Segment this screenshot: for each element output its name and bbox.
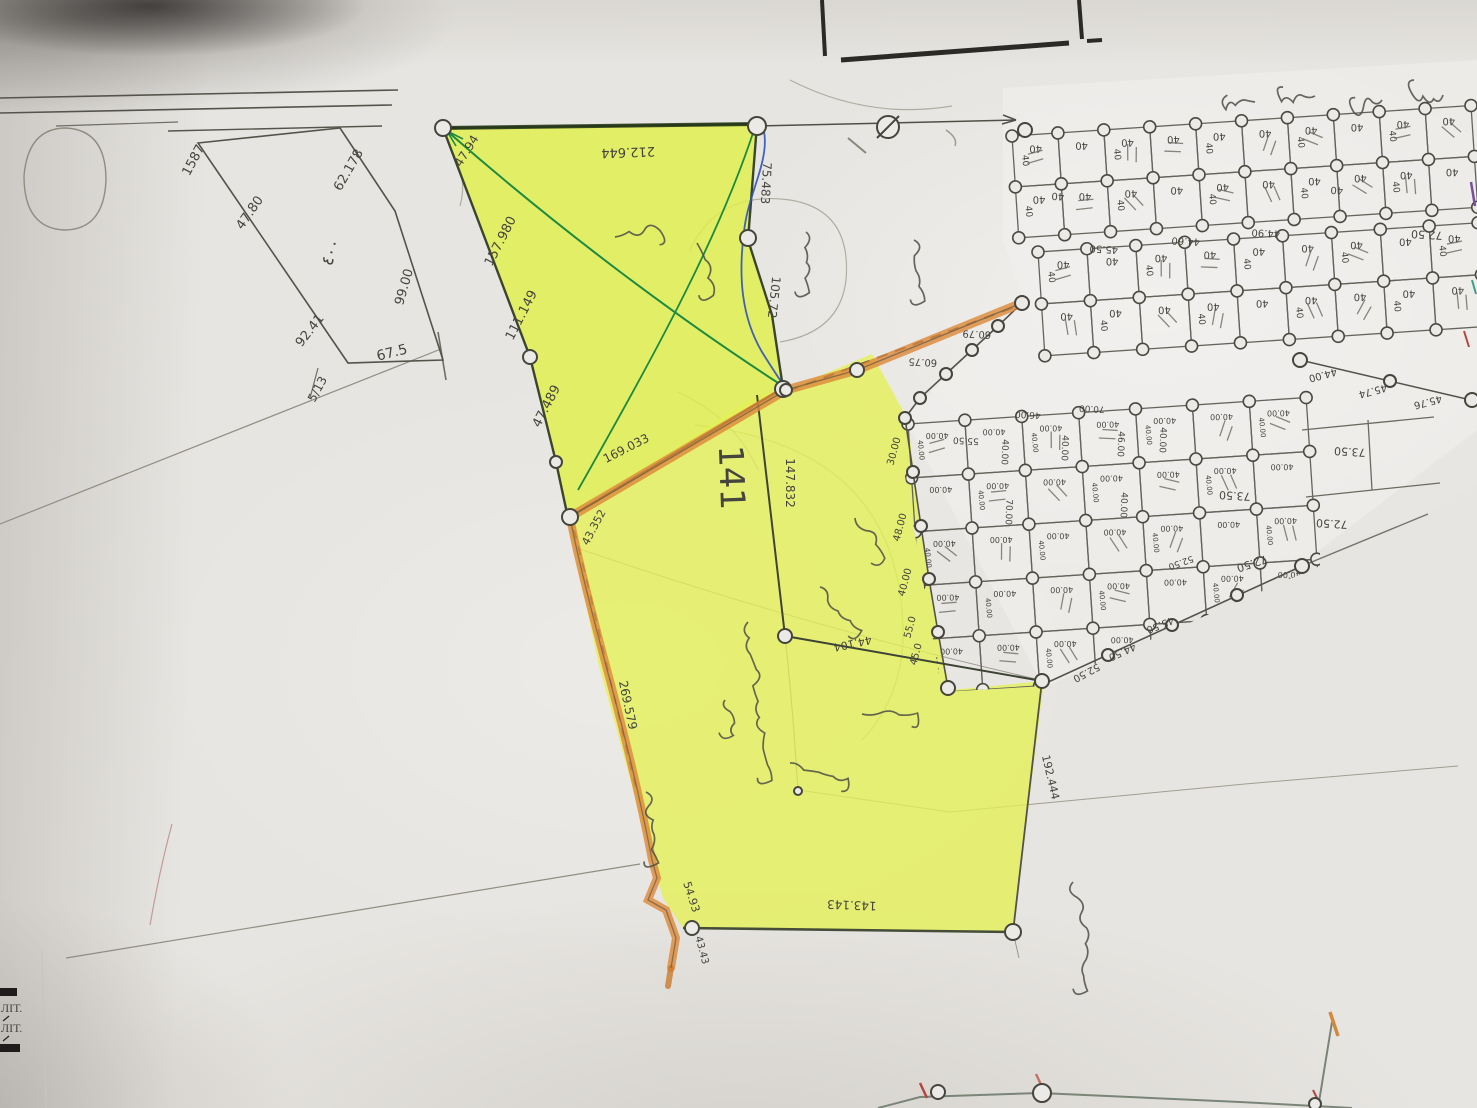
survey-node	[931, 1085, 945, 1099]
dim-label: 40	[1259, 127, 1272, 138]
arabic-scribble	[1060, 881, 1096, 995]
grid-corner-node	[1314, 607, 1327, 620]
survey-node	[562, 509, 578, 525]
dim-label-vertical: 40	[1111, 148, 1122, 161]
survey-node	[1018, 123, 1032, 137]
dim-label: 40	[1301, 242, 1314, 253]
grid-corner-node	[1380, 207, 1393, 220]
survey-node	[523, 350, 537, 364]
grid-corner-node	[1231, 285, 1244, 298]
dim-label: 40	[1262, 178, 1275, 189]
dim-label-vertical: 40	[1114, 199, 1125, 212]
survey-node	[794, 787, 802, 795]
dim-label-vertical: 40	[1019, 154, 1030, 167]
measurement-label: 44.60	[1171, 234, 1200, 246]
dim-label: 40	[1354, 172, 1367, 183]
dim-label-vertical: 40	[1195, 313, 1206, 326]
dim-label-vertical: 40	[1143, 264, 1154, 277]
measurement-label: 62.178	[331, 147, 367, 194]
grid-corner-node	[1376, 156, 1389, 169]
grid-corner-node	[1097, 124, 1110, 137]
frame-vertical-left	[822, 0, 825, 56]
survey-node	[932, 626, 944, 638]
survey-node	[1295, 559, 1309, 573]
dim-label: 40.00	[1043, 477, 1066, 486]
grid-corner-node	[1129, 239, 1142, 252]
grid-corner-node	[1133, 456, 1146, 469]
grid-corner-node	[1325, 226, 1338, 239]
measurement-label: 44.90	[1251, 226, 1280, 238]
survey-node	[966, 344, 978, 356]
survey-node	[1035, 674, 1049, 688]
grid-corner-node	[973, 629, 986, 642]
measurement-label: 70.00	[1003, 499, 1014, 525]
frame-horizontal	[841, 43, 1069, 60]
dim-label: 40	[1399, 236, 1412, 247]
measurement-label: ٤٠٠	[317, 236, 345, 269]
grid-corner-node	[1238, 165, 1251, 178]
grid-corner-node	[1426, 272, 1439, 285]
dim-label: 40	[1402, 287, 1415, 298]
dim-label: 40	[1109, 307, 1122, 318]
grid-corner-node	[1283, 333, 1296, 346]
grid-corner-node	[1084, 294, 1097, 307]
dim-label: 40	[1033, 193, 1046, 204]
grid-corner-node	[1030, 626, 1043, 639]
frame-vertical-right	[1079, 0, 1082, 39]
measurement-label: 73.50	[1334, 444, 1366, 459]
grid-corner-node	[1058, 228, 1071, 241]
survey-node	[923, 573, 935, 585]
plot-number-scribble	[1169, 635, 1192, 658]
bottom-sketch-red-tick-1	[920, 1083, 927, 1098]
grid-corner-node	[1055, 177, 1068, 190]
grid-corner-node	[1243, 395, 1256, 408]
grid-corner-node	[1143, 120, 1156, 133]
legend-arrow	[3, 1036, 9, 1041]
survey-node	[550, 456, 562, 468]
dim-label: 40.00	[1271, 462, 1294, 471]
dim-label: 40	[1446, 166, 1459, 177]
grid-corner-node	[1182, 288, 1195, 301]
dim-label: 40.00	[1103, 527, 1126, 536]
survey-node	[941, 681, 955, 695]
grid-corner-node	[1104, 225, 1117, 238]
grid-corner-node	[1425, 204, 1438, 217]
dim-label: 40.00	[1050, 585, 1073, 594]
measurement-label: 60.75	[908, 355, 937, 367]
survey-node	[915, 520, 927, 532]
measurement-label: 143.143	[827, 897, 877, 913]
measurement-label: 46.00	[1115, 431, 1126, 457]
grid-corner-node	[1246, 449, 1259, 462]
grid-corner-node	[1327, 108, 1340, 121]
measurement-label: 72.50	[1316, 516, 1348, 531]
grid-corner-node	[1374, 223, 1387, 236]
grid-corner-node	[1136, 510, 1149, 523]
grid-corner-node	[1250, 503, 1263, 516]
grid-corner-node	[1185, 340, 1198, 353]
grid-corner-node	[1377, 275, 1390, 288]
dim-label: 40.00	[933, 539, 956, 548]
dim-label-vertical: 40	[1386, 130, 1397, 143]
dim-label: 40.00	[1100, 473, 1123, 482]
dim-label: 40.00	[1047, 531, 1070, 540]
grid-corner-node	[1334, 210, 1347, 223]
survey-node	[940, 368, 952, 380]
dim-label: 40.00	[1107, 581, 1130, 590]
measurement-label: 55.50	[952, 434, 979, 445]
grid-corner-node	[1079, 514, 1092, 527]
dim-label: 40.00	[1039, 423, 1062, 432]
measurement-label: 46.00	[1014, 408, 1041, 419]
grid-corner-node	[1235, 114, 1248, 127]
dim-label: 40	[1060, 310, 1073, 321]
grid-cell	[1264, 613, 1324, 671]
measurement-label: 141	[710, 444, 752, 510]
dim-label: 40.00	[1096, 420, 1119, 429]
grid-corner-node	[1281, 111, 1294, 124]
grid-corner-node	[1087, 346, 1100, 359]
tick-2	[946, 130, 956, 146]
dim-label: 40	[1170, 184, 1183, 195]
top-road-line-3	[56, 122, 178, 126]
road-faint	[0, 349, 441, 524]
dim-label: 40.00	[936, 593, 959, 602]
legend-bar	[0, 988, 17, 996]
grid-corner-node	[1101, 174, 1114, 187]
survey-node	[850, 363, 864, 377]
legend-fragment: ЛІТ.ЛІТ.	[0, 988, 22, 1052]
grid-corner-node	[1133, 291, 1146, 304]
survey-node	[899, 412, 911, 424]
dim-label: 40.00	[990, 535, 1013, 544]
measurement-label: 45.50	[1089, 242, 1118, 254]
dim-label-vertical: 40	[1206, 193, 1217, 206]
dim-label: 40.00	[1160, 524, 1183, 533]
grid-corner-node	[1190, 453, 1203, 466]
dim-label: 40.00	[1210, 412, 1233, 421]
survey-node	[1033, 1084, 1051, 1102]
grid-corner-node	[1012, 231, 1025, 244]
survey-node	[992, 320, 1004, 332]
dim-label: 40.00	[1153, 416, 1176, 425]
map-photo: 4040404040404040404040404040404040404040…	[0, 0, 1477, 1108]
measurement-label: 192.444	[1039, 754, 1062, 801]
measurement-label: 212.644	[601, 143, 655, 160]
dim-label: 40	[1256, 297, 1269, 308]
sketch-street-line	[168, 126, 382, 131]
dim-label-vertical: 40	[1298, 187, 1309, 200]
grid-corner-node	[1227, 233, 1240, 246]
grid-corner-node	[1373, 105, 1386, 118]
grid-paper-lightening	[905, 60, 1477, 688]
dim-label-vertical: 40.00	[1158, 640, 1168, 661]
measurement-label: 73.50	[1219, 488, 1251, 503]
grid-corner-node	[1032, 246, 1045, 259]
dim-label: 40.00	[1221, 574, 1244, 583]
dim-label: 40.00	[940, 646, 963, 655]
grid-corner-node	[969, 575, 982, 588]
dim-label: 40	[1351, 121, 1364, 132]
legend-text: ЛІТ.	[1, 1021, 22, 1035]
dim-label-vertical: 40	[1097, 320, 1108, 333]
grid-corner-node	[1307, 499, 1320, 512]
grid-corner-node	[1129, 403, 1142, 416]
dim-label-vertical: 40	[1045, 271, 1056, 284]
grid-corner-node	[1035, 298, 1048, 311]
measurement-label: 1587	[180, 142, 209, 178]
dim-label-vertical: 40	[1295, 136, 1306, 149]
grid-corner-node	[1090, 676, 1103, 689]
measurement-label: 40.00	[999, 439, 1010, 465]
dim-label: 40	[1106, 255, 1119, 266]
grid-corner-node	[1083, 568, 1096, 581]
measurement-label: 60.79	[962, 327, 991, 339]
grid-corner-node	[1300, 391, 1313, 404]
dim-label-vertical: 40	[1293, 307, 1304, 320]
measurement-label: 70.00	[1078, 402, 1105, 413]
dim-label: 40	[1305, 124, 1318, 135]
arabic-scribble	[783, 232, 821, 298]
grid-corner-node	[1009, 181, 1022, 194]
measurement-label: 105.72	[765, 276, 783, 319]
grid-corner-node	[1468, 150, 1477, 163]
grid-corner-node	[1147, 171, 1160, 184]
dim-label: 40.00	[993, 589, 1016, 598]
survey-node	[778, 629, 792, 643]
dim-label-vertical: 40.00	[916, 440, 926, 461]
dim-label: 40	[1305, 294, 1318, 305]
bottom-sketch-line	[878, 1093, 1352, 1108]
dim-label: 40.00	[1217, 520, 1240, 529]
dim-label: 40	[1252, 245, 1265, 256]
grid-corner-node	[1288, 213, 1301, 226]
grid-corner-node	[1200, 614, 1213, 627]
dim-label-vertical: 40	[1391, 300, 1402, 313]
grid-corner-node	[1257, 610, 1270, 623]
dim-label: 40	[1075, 139, 1088, 150]
dim-label-vertical: 40	[1241, 258, 1252, 271]
arc-under-frame	[790, 80, 952, 110]
grid-corner-node	[1052, 127, 1065, 140]
survey-node	[685, 921, 699, 935]
grid-corner-node	[1039, 349, 1052, 362]
survey-node	[748, 117, 766, 135]
measurement-label: 43.43	[692, 935, 710, 966]
survey-node	[435, 120, 451, 136]
bottom-right-line	[1318, 1022, 1332, 1108]
legend-text: ЛІТ.	[1, 1001, 22, 1015]
measurement-label: 75.483	[758, 162, 774, 205]
dim-label: 40.00	[997, 643, 1020, 652]
grid-corner-node	[1284, 162, 1297, 175]
grid-corner-node	[1419, 102, 1432, 115]
plot-number-scribble	[1229, 634, 1250, 655]
dim-label: 40.00	[1281, 624, 1304, 633]
measurement-label: 40	[1051, 190, 1064, 202]
survey-node	[907, 466, 919, 478]
dim-label-vertical: 40	[1022, 205, 1033, 218]
frame-dash	[1087, 40, 1102, 41]
grid-corner-node	[1303, 445, 1316, 458]
survey-node	[740, 230, 756, 246]
orange-boundary-tail	[668, 968, 671, 986]
grid-corner-node	[1136, 343, 1149, 356]
measurement-label: 47.80	[233, 193, 267, 232]
grid-corner-node	[1330, 159, 1343, 172]
grid-cell	[1207, 617, 1267, 675]
grid-corner-node	[966, 522, 979, 535]
grid-corner-node	[1193, 506, 1206, 519]
survey-node	[1015, 296, 1029, 310]
grid-corner-node	[1186, 399, 1199, 412]
top-road-line-1	[0, 90, 398, 98]
dim-label: 40.00	[1164, 577, 1187, 586]
measurement-label: 147.832	[783, 458, 797, 508]
grid-corner-node	[1430, 323, 1443, 336]
grid-corner-node	[1087, 622, 1100, 635]
grid-corner-node	[1204, 668, 1217, 681]
legend-bar	[0, 1044, 20, 1052]
grid-corner-node	[1019, 464, 1032, 477]
grid-corner-node	[1422, 153, 1435, 166]
grid-corner-node	[1328, 278, 1341, 291]
survey-node	[914, 392, 926, 404]
dim-label: 40.00	[1274, 516, 1297, 525]
dim-label: 40.00	[926, 431, 949, 440]
tick-1	[848, 138, 866, 153]
grid-corner-node	[1196, 219, 1209, 232]
dim-label-vertical: 40.00	[983, 598, 993, 619]
measurement-label: 40.00	[1118, 492, 1129, 518]
grid-corner-node	[1150, 222, 1163, 235]
dim-label: 40	[1308, 175, 1321, 186]
grid-corner-node	[1234, 336, 1247, 349]
pink-curve	[150, 824, 172, 925]
measurement-label: 40.00	[1157, 427, 1168, 453]
dim-label: 40.00	[983, 427, 1006, 436]
grid-corner-node	[1006, 130, 1019, 143]
crease	[42, 950, 46, 1108]
measurement-label: 99.00	[392, 267, 417, 307]
dim-label: 40.00	[986, 481, 1009, 490]
dim-label-vertical: 40	[1390, 181, 1401, 194]
dim-label-vertical: 40	[1436, 245, 1447, 258]
dim-label: 40	[1207, 300, 1220, 311]
grid-corner-node	[1381, 327, 1394, 340]
grid-corner-node	[1261, 664, 1274, 677]
dim-label: 40.00	[929, 485, 952, 494]
dim-label: 40.00	[1267, 408, 1290, 417]
dim-label: 40.00	[1224, 628, 1247, 637]
measurement-label: 40	[1330, 184, 1343, 196]
grid-corner-node	[1147, 672, 1160, 685]
survey-node	[1231, 589, 1243, 601]
dim-label-vertical: 40	[1338, 251, 1349, 264]
grid-corner-node	[1076, 460, 1089, 473]
survey-node	[1005, 924, 1021, 940]
grid-corner-node	[958, 414, 971, 427]
survey-node	[1465, 393, 1477, 407]
dim-label: 40.00	[1157, 470, 1180, 479]
grid-corner-node	[1193, 168, 1206, 181]
top-road-line-2	[0, 105, 392, 113]
dim-label: 40.00	[1054, 639, 1077, 648]
dim-label: 40.00	[1214, 466, 1237, 475]
measurement-label: 5/13	[305, 374, 330, 404]
measurement-label: 40.00	[1059, 435, 1070, 461]
grid-corner-node	[962, 468, 975, 481]
dim-label: 40.00	[1168, 631, 1191, 640]
dim-label: 40	[1213, 130, 1226, 141]
arabic-scribble	[900, 239, 929, 305]
grid-corner-node	[1280, 281, 1293, 294]
dim-label-vertical: 40	[1203, 142, 1214, 155]
survey-node	[780, 384, 792, 396]
measurement-label: 92.41	[293, 312, 328, 351]
grid-corner-node	[1318, 661, 1331, 674]
grid-corner-node	[1197, 560, 1210, 573]
grid-corner-node	[1026, 572, 1039, 585]
grid-corner-node	[1332, 330, 1345, 343]
map-canvas: 4040404040404040404040404040404040404040…	[0, 0, 1477, 1108]
grid-corner-node	[1189, 117, 1202, 130]
grid-corner-node	[1023, 518, 1036, 531]
grid-corner-node	[1140, 564, 1153, 577]
dim-label-vertical: 40.00	[1271, 633, 1281, 654]
ellipse-sketch	[24, 128, 106, 230]
survey-node	[1293, 353, 1307, 367]
grid-corner-node	[1465, 99, 1477, 112]
measurement-label: 72.50	[1411, 227, 1443, 242]
survey-node	[1309, 1098, 1321, 1108]
